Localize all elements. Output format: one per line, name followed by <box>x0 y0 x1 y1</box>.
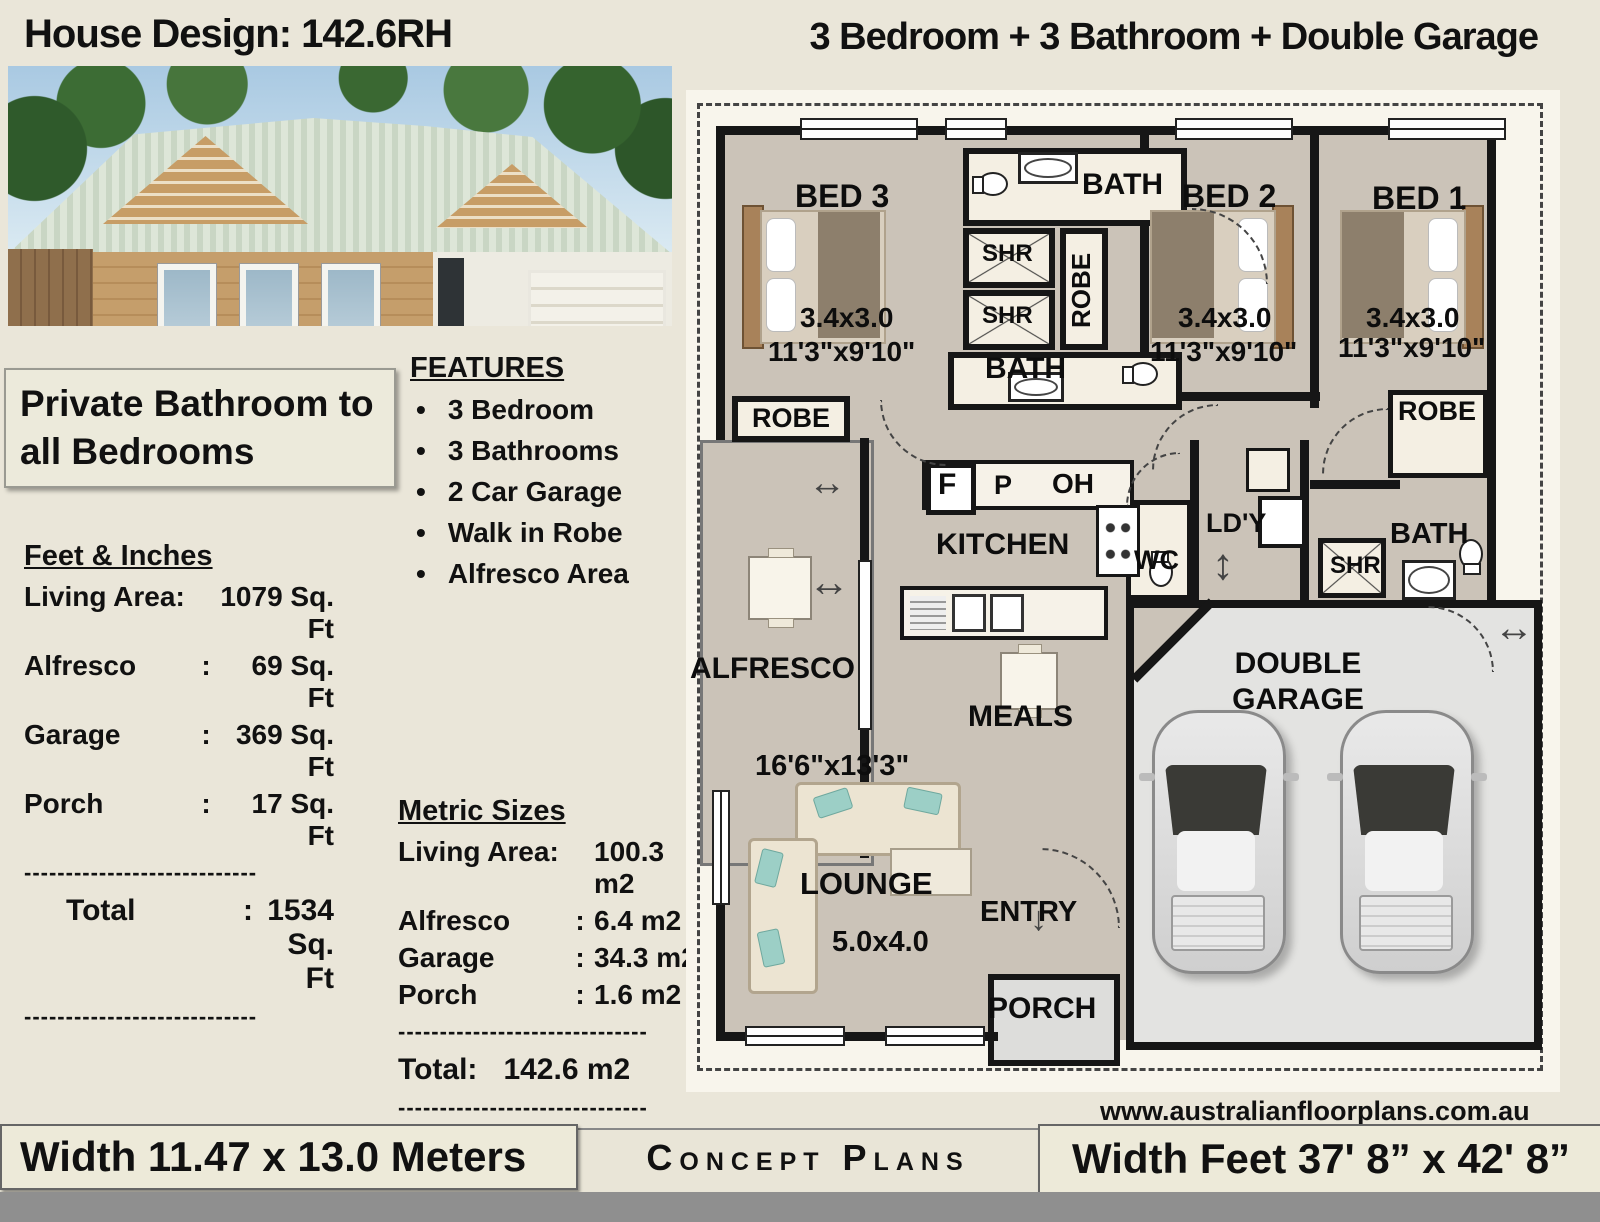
car-left <box>1152 710 1286 974</box>
car-rear <box>1359 895 1453 951</box>
spec-row: Porch:17 Sq. Ft <box>24 788 334 852</box>
window-bed3 <box>800 118 918 140</box>
concept-plan-sheet: House Design: 142.6RH 3 Bedroom + 3 Bath… <box>0 0 1600 1222</box>
label-bed1-metric: 3.4x3.0 <box>1366 302 1459 334</box>
feature-item: 3 Bedroom <box>410 394 680 426</box>
spec-total-row: Total:1534 Sq. Ft <box>24 894 334 996</box>
spec-row: Garage:369 Sq. Ft <box>24 719 334 783</box>
garage-door <box>528 270 666 326</box>
spec-label: Garage <box>398 942 566 974</box>
footer-brand: Concept Plans <box>578 1128 1038 1188</box>
basin-bath-right <box>1402 560 1456 600</box>
label-porch: PORCH <box>988 992 1096 1026</box>
metric-title: Metric Sizes <box>398 795 718 828</box>
hall-arrow: ↔ <box>808 462 846 505</box>
spec-colon: : <box>566 905 594 937</box>
features-list: 3 Bedroom 3 Bathrooms 2 Car Garage Walk … <box>410 394 680 590</box>
label-bath-right: BATH <box>1390 518 1468 551</box>
label-shr-2: SHR <box>982 302 1033 330</box>
footer-width-meters: Width 11.47 x 13.0 Meters <box>0 1124 578 1190</box>
spec-row: Living Area:100.3 m2 <box>398 836 708 900</box>
features-title: FEATURES <box>410 352 680 385</box>
wall-right <box>1487 126 1496 606</box>
spec-colon: : <box>192 719 220 783</box>
garage-door-arrow: ↔ <box>1494 606 1534 651</box>
label-bed3: BED 3 <box>795 178 889 215</box>
spec-label: Alfresco <box>398 905 566 937</box>
label-robe-bed3: ROBE <box>752 403 830 434</box>
spec-row: Alfresco:69 Sq. Ft <box>24 650 334 714</box>
feature-item: Alfresco Area <box>410 558 680 590</box>
basin-bath-top <box>1018 152 1078 184</box>
website-url: www.australianfloorplans.com.au <box>1100 1096 1530 1127</box>
label-bed3-metric: 3.4x3.0 <box>800 302 893 334</box>
window-bath <box>945 118 1007 140</box>
label-garage: DOUBLE GARAGE <box>1198 646 1398 718</box>
window <box>322 264 380 326</box>
page-subtitle: 3 Bedroom + 3 Bathroom + Double Garage <box>809 16 1538 59</box>
window-bed2 <box>1175 118 1293 140</box>
sink-bowl-2 <box>990 594 1024 632</box>
spec-colon: : <box>192 650 220 714</box>
spec-value: 1079 Sq. Ft <box>220 581 334 645</box>
spec-row: Alfresco:6.4 m2 <box>398 905 708 937</box>
fence <box>8 249 93 326</box>
spec-label: Garage <box>24 719 192 783</box>
highlight-box: Private Bathroom to all Bedrooms <box>4 368 396 488</box>
house-render-photo <box>8 66 672 326</box>
label-robe-hall: ROBE <box>1066 238 1097 342</box>
laundry-machine <box>1246 448 1290 492</box>
spec-row: Garage:34.3 m2 <box>398 942 708 974</box>
sink-drainer <box>910 596 946 630</box>
label-lounge-metric: 5.0x4.0 <box>832 926 929 959</box>
spec-colon: : <box>566 942 594 974</box>
label-bed3-imperial: 11'3"x9'10" <box>768 336 915 368</box>
feet-inches-section: Feet & Inches Living Area:1079 Sq. Ft Al… <box>24 540 344 1038</box>
spec-label: Porch <box>24 788 192 852</box>
wall-bed1-left <box>1310 128 1319 408</box>
divider: ------------------------------ <box>398 1095 708 1121</box>
alfresco-slider-door <box>858 560 872 730</box>
toilet-bath-top <box>978 172 1008 196</box>
feet-title: Feet & Inches <box>24 540 344 573</box>
window-bed1 <box>1388 118 1506 140</box>
feature-item: 3 Bathrooms <box>410 435 680 467</box>
label-entry: ENTRY <box>980 896 1077 929</box>
label-lounge-imperial: 16'6"x13'3" <box>755 750 909 783</box>
spec-label: Living Area: <box>24 581 192 645</box>
spec-colon: : <box>234 894 262 996</box>
car-rear <box>1171 895 1265 951</box>
divider: ------------------------------ <box>398 1019 708 1045</box>
label-bed2-imperial: 11'3"x9'10" <box>1150 336 1297 368</box>
alfresco-table <box>748 556 812 620</box>
sink-bowl-1 <box>952 594 986 632</box>
car-right <box>1340 710 1474 974</box>
spec-total-row: Total:142.6 m2 <box>398 1053 708 1087</box>
label-shr-1: SHR <box>982 240 1033 268</box>
label-bath-top: BATH <box>1082 168 1163 202</box>
label-pantry: P <box>994 470 1012 501</box>
metric-section: Metric Sizes Living Area:100.3 m2 Alfres… <box>398 795 718 1129</box>
feature-item: Walk in Robe <box>410 517 680 549</box>
wall-robe-bottom <box>1310 480 1400 489</box>
spec-colon <box>566 836 594 900</box>
car-mirror <box>1283 773 1299 781</box>
spec-colon: : <box>192 788 220 852</box>
car-mirror <box>1327 773 1343 781</box>
label-bed2: BED 2 <box>1182 178 1276 215</box>
divider: ---------------------------- <box>24 1004 334 1030</box>
spec-colon <box>192 581 220 645</box>
bottom-grey-strip <box>0 1192 1600 1222</box>
spec-value: 369 Sq. Ft <box>220 719 334 783</box>
window-lounge-2 <box>885 1026 985 1046</box>
slider-arrow-alfresco: ↔ <box>808 558 850 606</box>
label-kitchen: KITCHEN <box>936 528 1069 562</box>
window <box>240 264 298 326</box>
car-roof <box>1365 831 1443 891</box>
label-bed1: BED 1 <box>1372 180 1466 217</box>
spec-label: Total <box>24 894 234 996</box>
label-shr-right: SHR <box>1330 552 1381 580</box>
spec-row: Porch:1.6 m2 <box>398 979 708 1011</box>
car-mirror <box>1139 773 1155 781</box>
window-lounge-side <box>712 790 730 905</box>
window <box>158 264 216 326</box>
bed1-pillow <box>1428 218 1458 272</box>
label-lounge: LOUNGE <box>800 866 933 902</box>
spec-value: 142.6 m2 <box>503 1053 630 1087</box>
bed3-pillow <box>766 218 796 272</box>
wall-left-upper <box>716 126 725 440</box>
label-fridge: F <box>938 468 956 502</box>
spec-value: 17 Sq. Ft <box>220 788 334 852</box>
label-wc: WC <box>1134 545 1179 576</box>
window-lounge-1 <box>745 1026 845 1046</box>
footer-width-feet: Width Feet 37' 8” x 42' 8” <box>1038 1124 1600 1194</box>
car-windshield <box>1353 765 1455 835</box>
spec-value: 1534 Sq. Ft <box>262 894 334 996</box>
spec-label: Total: <box>398 1053 477 1087</box>
label-alfresco: ALFRESCO <box>690 652 855 686</box>
car-windshield <box>1165 765 1267 835</box>
car-mirror <box>1471 773 1487 781</box>
features-section: FEATURES 3 Bedroom 3 Bathrooms 2 Car Gar… <box>410 352 680 599</box>
feature-item: 2 Car Garage <box>410 476 680 508</box>
label-laundry: LD'Y <box>1206 508 1266 539</box>
bed3-pillow <box>766 278 796 332</box>
spec-label: Living Area: <box>398 836 566 900</box>
label-bath-bottom: BATH <box>985 352 1066 386</box>
spec-value: 69 Sq. Ft <box>220 650 334 714</box>
page-title: House Design: 142.6RH <box>24 12 452 57</box>
divider: ---------------------------- <box>24 860 334 886</box>
spec-row: Living Area:1079 Sq. Ft <box>24 581 334 645</box>
label-oh: OH <box>1052 468 1094 500</box>
spec-label: Alfresco <box>24 650 192 714</box>
spec-label: Porch <box>398 979 566 1011</box>
label-bed1-imperial: 11'3"x9'10" <box>1338 332 1485 364</box>
car-roof <box>1177 831 1255 891</box>
laundry-arrow: ↕ <box>1212 540 1234 590</box>
entry-door <box>438 258 464 326</box>
spec-colon: : <box>566 979 594 1011</box>
label-bed2-metric: 3.4x3.0 <box>1178 302 1271 334</box>
label-meals: MEALS <box>968 700 1073 734</box>
label-robe-bed1: ROBE <box>1398 396 1476 427</box>
